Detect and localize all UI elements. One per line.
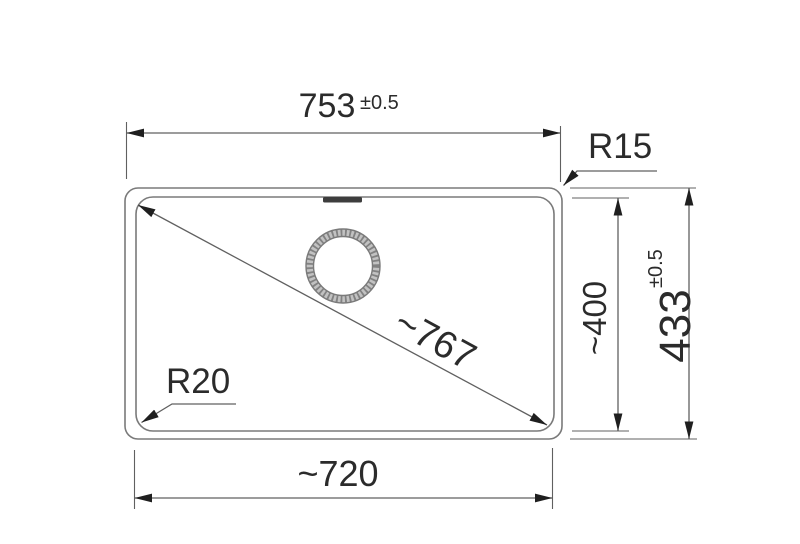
r20-label: R20: [166, 362, 230, 401]
r15-label: R15: [588, 127, 652, 166]
dim-outer-height-tolerance: ±0.5: [645, 249, 667, 288]
dim-top-value: 753: [299, 87, 356, 125]
dim-outer-height-value: 433: [651, 289, 700, 362]
dim-bottom-value: ~720: [297, 453, 378, 494]
dim-top-tolerance: ±0.5: [360, 92, 399, 114]
canvas-background: [0, 0, 800, 544]
technical-drawing: ~767 753 ±0.5 R15 R20 ~400 433 ±0.5: [0, 0, 800, 544]
dim-inner-height-value: ~400: [576, 281, 613, 355]
overflow-slot: [323, 197, 362, 203]
